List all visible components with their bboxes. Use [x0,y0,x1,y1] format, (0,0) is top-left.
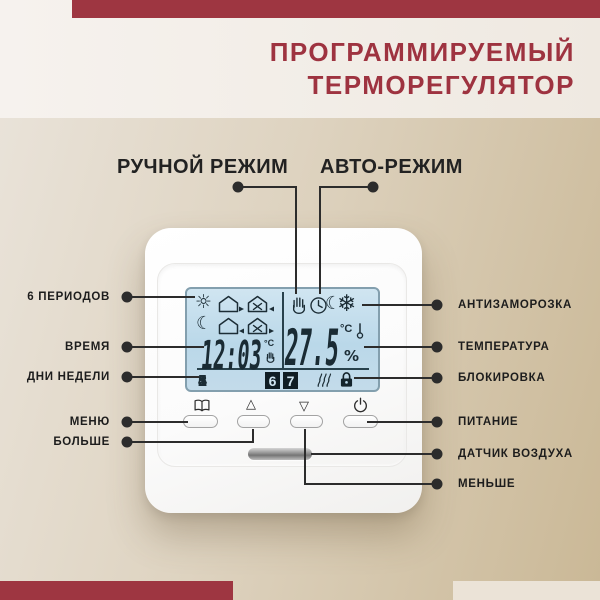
infographic: ПРОГРАММИРУЕМЫЙ ТЕРМОРЕГУЛЯТОР РУЧНОЙ РЕ… [0,0,600,600]
callout-label-more: БОЛЬШЕ [53,434,110,450]
thermostat-device: ☼ ☾ 12:03 °C [145,228,422,513]
callout-label-air-sensor: ДАТЧИК ВОЗДУХА [458,446,573,462]
callout-label-lock: БЛОКИРОВКА [458,370,545,386]
manual-mode-label: РУЧНОЙ РЕЖИМ [117,156,288,179]
power-button[interactable] [343,415,378,428]
time-unit: °C [264,338,274,348]
house-arrow-right-icon [218,295,245,313]
up-triangle-icon: △ [246,398,256,411]
auto-mode-label: АВТО-РЕЖИМ [320,156,463,179]
down-button[interactable] [290,415,323,428]
house-work-arrow-left-icon [247,295,275,313]
day-7-active: 7 [283,372,298,389]
lock-icon [338,370,355,388]
moon-icon: ☾ [196,315,212,333]
callout-label-temperature: ТЕМПЕРАТУРА [458,339,549,355]
callout-label-time: ВРЕМЯ [65,339,110,355]
callout-label-weekdays: ДНИ НЕДЕЛИ [27,369,110,385]
power-icon [353,397,368,412]
heat-waves-icon [317,372,332,388]
temperature-display: 27.5 [283,323,342,373]
menu-book-icon [193,399,211,412]
day-5: 5 [198,373,207,391]
title-line-2: ТЕРМОРЕГУЛЯТОР [270,69,575,102]
hand-icon [290,295,308,316]
hand-small-icon [265,351,276,364]
snowflake-icon: ❄ [337,293,356,316]
callout-label-less: МЕНЬШЕ [458,476,515,492]
menu-button[interactable] [183,415,218,428]
up-button[interactable] [237,415,270,428]
lcd-screen: ☼ ☾ 12:03 °C [185,287,380,392]
thermometer-icon [356,322,364,339]
percent-sign: % [344,347,359,365]
title-line-1: ПРОГРАММИРУЕМЫЙ [270,36,575,69]
bottom-corner-bar [453,581,600,600]
callout-label-antifreeze: АНТИЗАМОРОЗКА [458,297,572,313]
temp-unit: °C [340,323,352,335]
page-title: ПРОГРАММИРУЕМЫЙ ТЕРМОРЕГУЛЯТОР [270,36,575,102]
top-accent-bar [72,0,600,18]
sun-icon: ☼ [195,293,212,312]
time-display: 12:03 [200,336,264,376]
down-triangle-icon: ▽ [299,400,309,413]
callout-label-periods: 6 ПЕРИОДОВ [27,289,110,305]
bottom-accent-bar [0,581,233,600]
callout-label-menu: МЕНЮ [70,414,110,430]
day-6-active: 6 [265,372,280,389]
callout-label-power: ПИТАНИЕ [458,414,518,430]
air-sensor-slot [248,448,312,460]
